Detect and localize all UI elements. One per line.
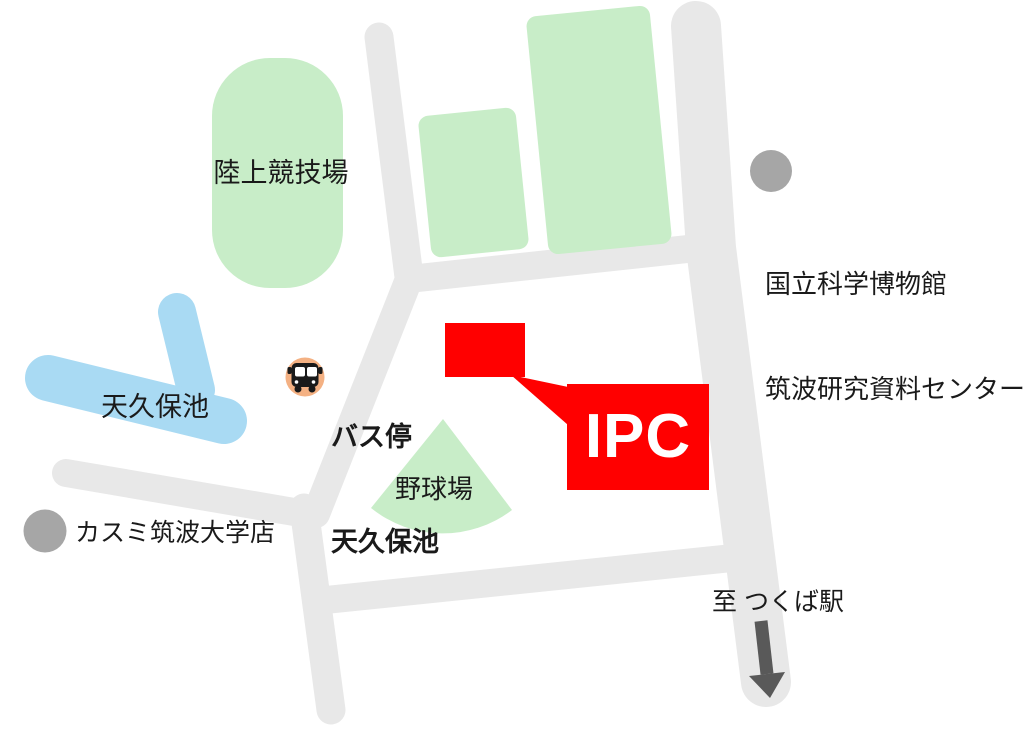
bus-mirror-right [319, 367, 323, 374]
museum-label: 国立科学博物館 筑波研究資料センター [765, 197, 1024, 477]
access-map: 陸上競技場 国立科学博物館 筑波研究資料センター バス停 天久保池 天久保池 野… [0, 0, 1024, 735]
bus-window-right [307, 367, 317, 377]
pond-arm-north [177, 312, 196, 390]
bus-stop-label-line1: バス停 [331, 420, 439, 455]
athletics-field-label: 陸上競技場 [181, 157, 381, 191]
museum-location-dot [750, 150, 792, 192]
green-field-large [526, 5, 673, 255]
green-field-small [418, 107, 530, 258]
ipc-callout-label: IPC [567, 384, 709, 490]
museum-label-line1: 国立科学博物館 [765, 267, 1024, 302]
bus-light-right [312, 380, 316, 384]
bus-mirror-left [288, 367, 292, 374]
to-station-label: 至 つくば駅 [712, 587, 844, 618]
road-north [379, 37, 409, 277]
bus-light-left [295, 380, 299, 384]
arrow-shaft [761, 621, 767, 674]
bus-stop-label-line2: 天久保池 [331, 525, 439, 560]
kasumi-store-label: カスミ筑波大学店 [75, 518, 275, 549]
bus-wheel-right [309, 386, 316, 393]
museum-label-line2: 筑波研究資料センター [765, 372, 1024, 407]
pond-label: 天久保池 [55, 391, 255, 425]
store-location-dot [24, 510, 67, 553]
road-west [66, 473, 300, 513]
bus-wheel-left [295, 386, 302, 393]
bus-window-left [295, 367, 305, 377]
bus-icon [286, 358, 325, 397]
ipc-building [445, 323, 525, 377]
road-main-to-station [696, 26, 766, 682]
baseball-field-label: 野球場 [334, 473, 534, 506]
